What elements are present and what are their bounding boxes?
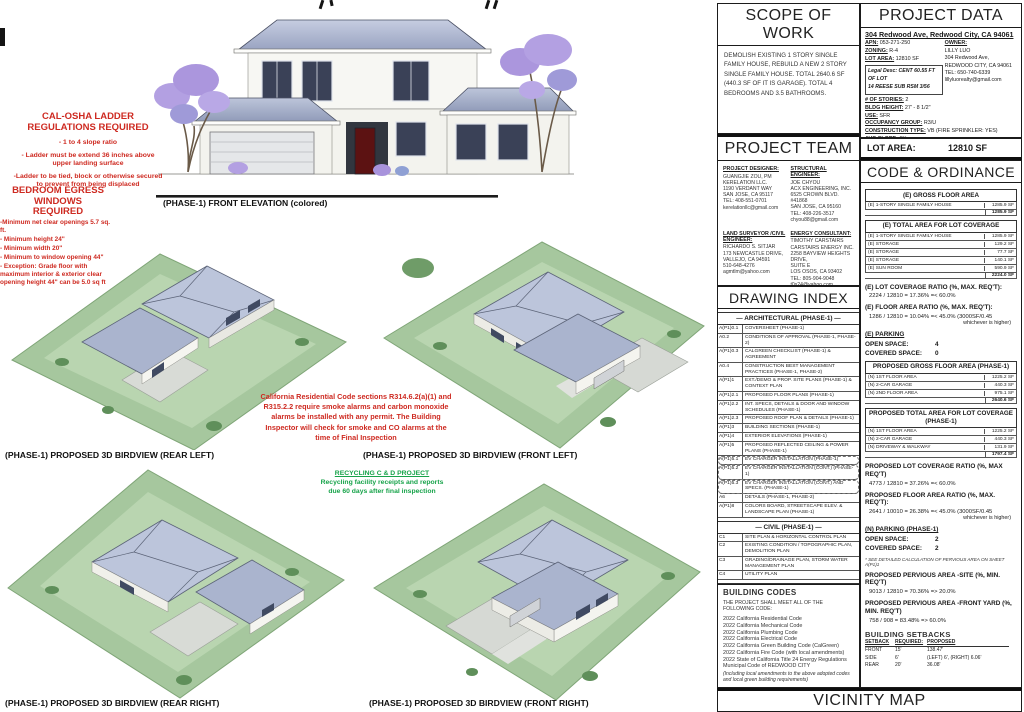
sheet-title: EXT./DEMO & PROP. SITE PLANS (PHASE-1) &… (743, 377, 859, 391)
project-data-left-fields: APN: 053-271-250ZONING: R-4LOT AREA: 128… (865, 40, 945, 63)
proposed-coverage-total: 1797.4 SF (865, 452, 1017, 458)
surveyor-line: 173 NEWCASTLE DRIVE, (723, 251, 787, 257)
pervious-footnote: * SEE DETAILED CALCULATION OF PERVIOUS A… (865, 557, 1017, 567)
sheet-title: COLORS BOARD, STREETSCAPE ELEV. & LANDSC… (743, 503, 859, 517)
cal-osha-title-line2: REGULATIONS REQUIRED (12, 123, 164, 134)
sheet-row: C4UTILITY PLAN (718, 571, 859, 580)
project-team-heading: PROJECT TEAM (718, 137, 859, 161)
structural-line: ACX ENGINEERING, INC. (791, 186, 855, 192)
building-codes-heading: BUILDING CODES (723, 588, 854, 597)
owner-block: OWNER: LILLY LUO304 Redwood Ave,REDWOOD … (945, 40, 1017, 97)
proposed-lot-coverage-ratio: PROPOSED LOT COVERAGE RATIO (%, MAX REQ'… (865, 463, 1017, 486)
e-gross-floor-area-table: (E) 1-STORY SINGLE FAMILY HOUSE1285.9 SF (865, 202, 1017, 210)
sheet-row: A(P1)1EXT./DEMO & PROP. SITE PLANS (PHAS… (718, 377, 859, 392)
sheet-title: INT. SPECS, DETAILS & DOOR AND WINDOW SC… (743, 401, 859, 415)
building-setbacks-heading: BUILDING SETBACKS (865, 630, 1017, 639)
building-code-item: Municipal Code of REDWOOD CITY (723, 663, 854, 670)
garage-door (210, 132, 314, 174)
area-row: (N) 1ST FLOOR AREA1225.2 SF (866, 428, 1016, 436)
sheet-number: C1 (718, 534, 743, 542)
drawing-index-panel: DRAWING INDEX — ARCHITECTURAL (PHASE-1) … (717, 286, 860, 585)
caption-rear-left: (PHASE-1) PROPOSED 3D BIRDVIEW (REAR LEF… (5, 450, 214, 460)
setbacks-header-row: SETBACK REQUIRED: PROPOSED (865, 639, 1009, 648)
vicinity-map-heading: VICINITY MAP (813, 692, 925, 710)
structural-line: chyou88@gmail.com (791, 217, 855, 223)
sheet-number: A(P1)8 (718, 503, 743, 517)
energy-line: CARSTAIRS ENERGY INC. (791, 245, 855, 251)
project-data-field: BLDG HEIGHT: 27' - 8 1/2" (865, 105, 1017, 113)
birdview-front-right-rendering (350, 476, 706, 704)
sheet-number: A(P1)2.3 (718, 415, 743, 423)
civil-sheet-list: C1SITE PLAN & HORIZONTAL CONTROL PLANC2E… (718, 534, 859, 581)
sheet-number: A(P1)4 (718, 433, 743, 441)
sheet-row: A(P1)5.3EV CHARGER INSTALLATION (CONT.) … (718, 480, 859, 495)
sheet-title: UTILITY PLAN (743, 571, 859, 579)
tree (402, 258, 434, 278)
sheet-title: DETAILS (PHASE-1, PHASE-2) (743, 494, 859, 502)
owner-line: TEL: 650-740-6339 (945, 70, 1017, 77)
area-row: (E) STORAGE77.7 SF (866, 249, 1016, 257)
egress-item: - Exception: Grade floor with maximum in… (0, 263, 116, 287)
egress-item: - Minimum width 20" (0, 245, 116, 253)
setbacks-table: FRONT15'138.47'SIDE6'(LEFT) 6', (RIGHT) … (865, 647, 1017, 670)
e-gross-total: 1285.9 SF (865, 210, 1017, 216)
proposed-gross-table: (N) 1ST FLOOR AREA1225.2 SF(N) 2-CAR GAR… (865, 374, 1017, 398)
cal-osha-items: - 1 to 4 slope ratio- Ladder must be ext… (12, 139, 164, 190)
cal-osha-item: - 1 to 4 slope ratio (12, 139, 164, 147)
sheet-number: C3 (718, 557, 743, 571)
designer-line: kerelationllc@gmail.com (723, 205, 787, 211)
area-row: (E) 1-STORY SINGLE FAMILY HOUSE1285.9 SF (866, 233, 1016, 241)
sheet-row: A(P1)5.1EV CHARGER INSTALLATION (PHASE-1… (718, 456, 859, 465)
e-lot-coverage-table: (E) 1-STORY SINGLE FAMILY HOUSE1285.9 SF… (865, 233, 1017, 273)
proposed-gross-heading: PROPOSED GROSS FLOOR AREA (PHASE-1) (865, 361, 1017, 374)
building-code-item: 2022 California Electrical Code (723, 636, 854, 643)
sheet-row: A(P1)2.2INT. SPECS, DETAILS & DOOR AND W… (718, 401, 859, 416)
legal-desc-line1: Legal Desc: CENT 60.55 FT OF LOT (868, 68, 940, 84)
drawing-index-heading: DRAWING INDEX (718, 287, 859, 309)
sheet-row: A(P1)0.1COVERSHEET (PHASE-1) (718, 325, 859, 334)
smoke-co-alarm-note: California Residential Code sections R31… (258, 392, 454, 443)
proposed-floor-area-ratio: PROPOSED FLOOR AREA RATIO (%, MAX. REQ'T… (865, 492, 1017, 521)
energy-consultant-block: ENERGY CONSULTANT: TIMOTHY CARSTAIRSCARS… (791, 231, 855, 286)
owner-line: 304 Redwood Ave, (945, 55, 1017, 62)
e-lot-coverage-ratio: (E) LOT COVERAGE RATIO (%, MAX. REQ'T): … (865, 284, 1017, 300)
recycling-title: RECYCLING C & D PROJECT (314, 470, 450, 479)
sheet-title: SITE PLAN & HORIZONTAL CONTROL PLAN (743, 534, 859, 542)
recycling-note: RECYCLING C & D PROJECT Recycling facili… (314, 470, 450, 496)
sheet-number: C2 (718, 542, 743, 556)
lot-area-row: LOT AREA: 12810 SF (860, 138, 1022, 160)
first-floor-window (396, 122, 426, 156)
n-parking-block: (N) PARKING (PHASE-1) OPEN SPACE:2 COVER… (865, 526, 1017, 552)
project-data-field: APN: 053-271-250 (865, 40, 945, 48)
area-row: (E) 1-STORY SINGLE FAMILY HOUSE1285.9 SF (866, 202, 1016, 210)
sheet-number: A(P1)5.1 (718, 456, 743, 464)
sheet-title: EV CHARGER INSTALLATION (CONT.) (PHASE-1… (743, 465, 859, 479)
designer-heading: PROJECT DESIGNER: (723, 166, 787, 172)
birdview-rear-right-rendering (0, 460, 348, 700)
sheet-row: C3GRADING/DRAINAGE PLAN, STORM WATER MAN… (718, 557, 859, 572)
area-row: (E) SUN ROOM590.9 SF (866, 265, 1016, 273)
sheet-title: PROPOSED REFLECTED CEILING & POWER PLANS… (743, 442, 859, 456)
legal-description-box: Legal Desc: CENT 60.55 FT OF LOT 14 REES… (865, 65, 943, 94)
sheet-row: A(P1)2.3PROPOSED ROOF PLAN & DETAILS (PH… (718, 415, 859, 424)
recycling-body: Recycling facility receipts and reports … (314, 479, 450, 497)
bedroom-egress-note: BEDROOM EGRESS WINDOWS REQUIRED -Minimum… (0, 186, 116, 287)
owner-heading: OWNER: (945, 40, 967, 46)
vicinity-map-panel: VICINITY MAP (717, 688, 1022, 712)
project-address: 304 Redwood Ave, Redwood City, CA 94061 (861, 28, 1021, 40)
code-ordinance-panel: CODE & ORDINANCE (E) GROSS FLOOR AREA (E… (860, 160, 1022, 688)
sheet-number: A(P1)0.3 (718, 348, 743, 362)
caption-front-left: (PHASE-1) PROPOSED 3D BIRDVIEW (FRONT LE… (363, 450, 577, 460)
setback-row: SIDE6'(LEFT) 6', (RIGHT) 6.06' (865, 655, 1017, 663)
building-code-item: 2022 State of California Title 24 Energy… (723, 657, 854, 664)
caption-rear-right: (PHASE-1) PROPOSED 3D BIRDVIEW (REAR RIG… (5, 698, 219, 708)
project-team-panel: PROJECT TEAM PROJECT DESIGNER: GUANGJIE … (717, 134, 860, 286)
caption-front-elevation: (PHASE-1) FRONT ELEVATION (colored) (163, 198, 327, 208)
building-codes-panel: BUILDING CODES THE PROJECT SHALL MEET AL… (717, 585, 860, 688)
sheet-row: C1SITE PLAN & HORIZONTAL CONTROL PLAN (718, 534, 859, 543)
sheet-title: EXISTING CONDITION / TOPOGRAPHIC PLAN, D… (743, 542, 859, 556)
sheet-title: PROPOSED ROOF PLAN & DETAILS (PHASE-1) (743, 415, 859, 423)
cal-osha-item: - Ladder must be extend 36 inches above … (12, 152, 164, 168)
building-code-item: 2022 California Green Building Code (Cal… (723, 643, 854, 650)
owner-line: REDWOOD CITY, CA 94061 (945, 63, 1017, 70)
project-data-panel: PROJECT DATA 304 Redwood Ave, Redwood Ci… (860, 3, 1022, 138)
sheet-row: A(P1)8COLORS BOARD, STREETSCAPE ELEV. & … (718, 503, 859, 518)
sheet-number: A(P1)1 (718, 377, 743, 391)
architectural-sheet-list: A(P1)0.1COVERSHEET (PHASE-1)A0.2CONDITIO… (718, 325, 859, 518)
sheet-row: C2EXISTING CONDITION / TOPOGRAPHIC PLAN,… (718, 542, 859, 557)
lot-area-value: 12810 SF (948, 143, 987, 153)
sheet-number: A(P1)0.1 (718, 325, 743, 333)
project-data-bottom-fields: # OF STORIES: 2BLDG HEIGHT: 27' - 8 1/2"… (861, 97, 1021, 138)
sheet-row: A(P1)3BUILDING SECTIONS (PHASE-1) (718, 424, 859, 433)
sheet-number: A(P1)3 (718, 424, 743, 432)
sheet-title: CONDITIONS OF APPROVAL (PHASE-1, PHASE-2… (743, 334, 859, 348)
egress-items: -Minimum net clear openings 5.7 sq. ft.-… (0, 219, 116, 287)
caption-front-right: (PHASE-1) PROPOSED 3D BIRDVIEW (FRONT RI… (369, 698, 589, 708)
sheet-title: GRADING/DRAINAGE PLAN, STORM WATER MANAG… (743, 557, 859, 571)
area-row: (N) 2ND FLOOR AREA975.1 SF (866, 390, 1016, 398)
sheet-title: COVERSHEET (PHASE-1) (743, 325, 859, 333)
front-elevation-rendering (150, 4, 580, 202)
egress-item: - Minimum height 24" (0, 236, 116, 244)
e-parking-block: (E) PARKING OPEN SPACE:4 COVERED SPACE:0 (865, 331, 1017, 357)
project-data-field: OCCUPANCY GROUP: R3/U (865, 120, 1017, 128)
scope-of-work-heading: SCOPE OF WORK (718, 4, 859, 46)
edge-mark (0, 28, 5, 46)
sheet-row: A6DETAILS (PHASE-1, PHASE-2) (718, 494, 859, 503)
sheet-row: A0.4CONSTRUCTION BEST MANAGEMENT PRACTIC… (718, 363, 859, 378)
sheet-number: A(P1)5 (718, 442, 743, 456)
project-data-field: ZONING: R-4 (865, 48, 945, 56)
owner-line: LILLY LUO (945, 48, 1017, 55)
cal-osha-note: CAL-OSHA LADDER REGULATIONS REQUIRED - 1… (12, 112, 164, 190)
proposed-coverage-heading: PROPOSED TOTAL AREA FOR LOT COVERAGE (PH… (865, 408, 1017, 429)
sheet-number: A(P1)5.2 (718, 465, 743, 479)
project-data-heading: PROJECT DATA (861, 4, 1021, 28)
civil-section-heading: — CIVIL (PHASE-1) — (718, 521, 859, 534)
building-code-item: 2022 California Plumbing Code (723, 630, 854, 637)
scope-of-work-panel: SCOPE OF WORK DEMOLISH EXISTING 1 STORY … (717, 3, 860, 134)
code-ordinance-heading: CODE & ORDINANCE (861, 161, 1021, 183)
sheet-number: A(P1)5.3 (718, 480, 743, 494)
setback-row: REAR20'36.08' (865, 662, 1017, 670)
legal-desc-line2: 14 REESE SUB RSM 3/56 (868, 84, 940, 92)
e-floor-area-ratio: (E) FLOOR AREA RATIO (%, MAX. REQ'T): 12… (865, 304, 1017, 326)
building-codes-list: 2022 California Residential Code2022 Cal… (723, 616, 854, 670)
sheet-row: A0.2CONDITIONS OF APPROVAL (PHASE-1, PHA… (718, 334, 859, 349)
project-data-field: CONSTRUCTION TYPE: VB (FIRE SPRINKLER: Y… (865, 128, 1017, 136)
sheet-title: CALGREEN CHECKLIST (PHASE-1) & AGREEMENT (743, 348, 859, 362)
pervious-front-yard-block: PROPOSED PERVIOUS AREA -FRONT YARD (%, M… (865, 600, 1017, 623)
pervious-site-block: PROPOSED PERVIOUS AREA -SITE (%, MIN. RE… (865, 572, 1017, 595)
sheet-title: EV CHARGER INSTALLATION (PHASE-1) (743, 456, 859, 464)
setback-row: FRONT15'138.47' (865, 647, 1017, 655)
structural-line: 6525 CROWN BLVD. #41868 (791, 192, 855, 204)
e-lot-coverage-heading: (E) TOTAL AREA FOR LOT COVERAGE (865, 220, 1017, 233)
sheet-title: CONSTRUCTION BEST MANAGEMENT PRACTICES (… (743, 363, 859, 377)
sheet-number: A(P1)2.2 (718, 401, 743, 415)
building-codes-note: (Including local amendments to the above… (723, 671, 854, 683)
egress-title-line3: REQUIRED (0, 207, 116, 218)
sheet-number: A(P1)2.1 (718, 392, 743, 400)
sheet-title: EXTERIOR ELEVATIONS (PHASE-1) (743, 433, 859, 441)
energy-heading: ENERGY CONSULTANT: (791, 231, 855, 237)
e-gross-floor-area-heading: (E) GROSS FLOOR AREA (865, 189, 1017, 202)
architectural-section-heading: — ARCHITECTURAL (PHASE-1) — (718, 312, 859, 325)
egress-item: -Minimum net clear openings 5.7 sq. ft. (0, 219, 116, 235)
e-lot-coverage-total: 2224.0 SF (865, 273, 1017, 279)
energy-line: 2258 BAYVIEW HEIGHTS DRIVE, (791, 251, 855, 263)
project-data-field: LOT AREA: 12810 SF (865, 56, 945, 64)
building-codes-intro: THE PROJECT SHALL MEET ALL OF THE FOLLOW… (723, 600, 854, 612)
lot-area-label: LOT AREA: (867, 143, 916, 153)
area-row: (N) 1ST FLOOR AREA1225.2 SF (866, 374, 1016, 382)
area-row: (N) 2-CAR GARAGE440.3 SF (866, 382, 1016, 390)
building-code-item: 2022 California Fire Code (with local am… (723, 650, 854, 657)
structural-heading: STRUCTURAL ENGINEER: (791, 166, 855, 178)
sheet-number: A0.4 (718, 363, 743, 377)
egress-item: - Minimum to window opening 44" (0, 254, 116, 262)
building-code-item: 2022 California Residential Code (723, 616, 854, 623)
sheet-title: EV CHARGER INSTALLATION (CONT.) AND SPEC… (743, 480, 859, 494)
structural-engineer-block: STRUCTURAL ENGINEER: JOE CHYOUACX ENGINE… (791, 166, 855, 223)
project-data-field: USE: SFR (865, 113, 1017, 121)
surveyor-heading: LAND SURVEYOR /CIVIL ENGINEER: (723, 231, 787, 243)
sheet-number: A6 (718, 494, 743, 502)
sheet-row: A(P1)5PROPOSED REFLECTED CEILING & POWER… (718, 442, 859, 457)
proposed-coverage-table: (N) 1ST FLOOR AREA1225.2 SF(N) 2-CAR GAR… (865, 428, 1017, 452)
sheet-number: A0.2 (718, 334, 743, 348)
area-row: (E) STORAGE140.1 SF (866, 257, 1016, 265)
sheet-row: A(P1)0.3CALGREEN CHECKLIST (PHASE-1) & A… (718, 348, 859, 363)
proposed-gross-total: 2640.6 SF (865, 398, 1017, 404)
plan-sheet: (PHASE-1) FRONT ELEVATION (colored) (PHA… (0, 0, 1024, 712)
sheet-row: A(P1)2.1PROPOSED FLOOR PLANS (PHASE-1) (718, 392, 859, 401)
building-code-item: 2022 California Mechanical Code (723, 623, 854, 630)
area-row: (N) 2-CAR GARAGE440.3 SF (866, 436, 1016, 444)
sheet-title: PROPOSED FLOOR PLANS (PHASE-1) (743, 392, 859, 400)
land-surveyor-block: LAND SURVEYOR /CIVIL ENGINEER: RICHARDO … (723, 231, 787, 286)
sheet-number: C4 (718, 571, 743, 579)
front-door (355, 128, 375, 174)
sheet-row: A(P1)4EXTERIOR ELEVATIONS (PHASE-1) (718, 433, 859, 442)
scope-of-work-text: DEMOLISH EXISTING 1 STORY SINGLE FAMILY … (718, 46, 859, 103)
area-row: (E) STORAGE129.2 SF (866, 241, 1016, 249)
owner-line: lillyluorealty@gmail.com (945, 77, 1017, 84)
surveyor-line: agmtlm@yahoo.com (723, 269, 787, 275)
project-data-field: # OF STORIES: 2 (865, 97, 1017, 105)
sheet-title: BUILDING SECTIONS (PHASE-1) (743, 424, 859, 432)
sheet-row: A(P1)5.2EV CHARGER INSTALLATION (CONT.) … (718, 465, 859, 480)
project-designer-block: PROJECT DESIGNER: GUANGJIE ZOU, PMKERELA… (723, 166, 787, 223)
